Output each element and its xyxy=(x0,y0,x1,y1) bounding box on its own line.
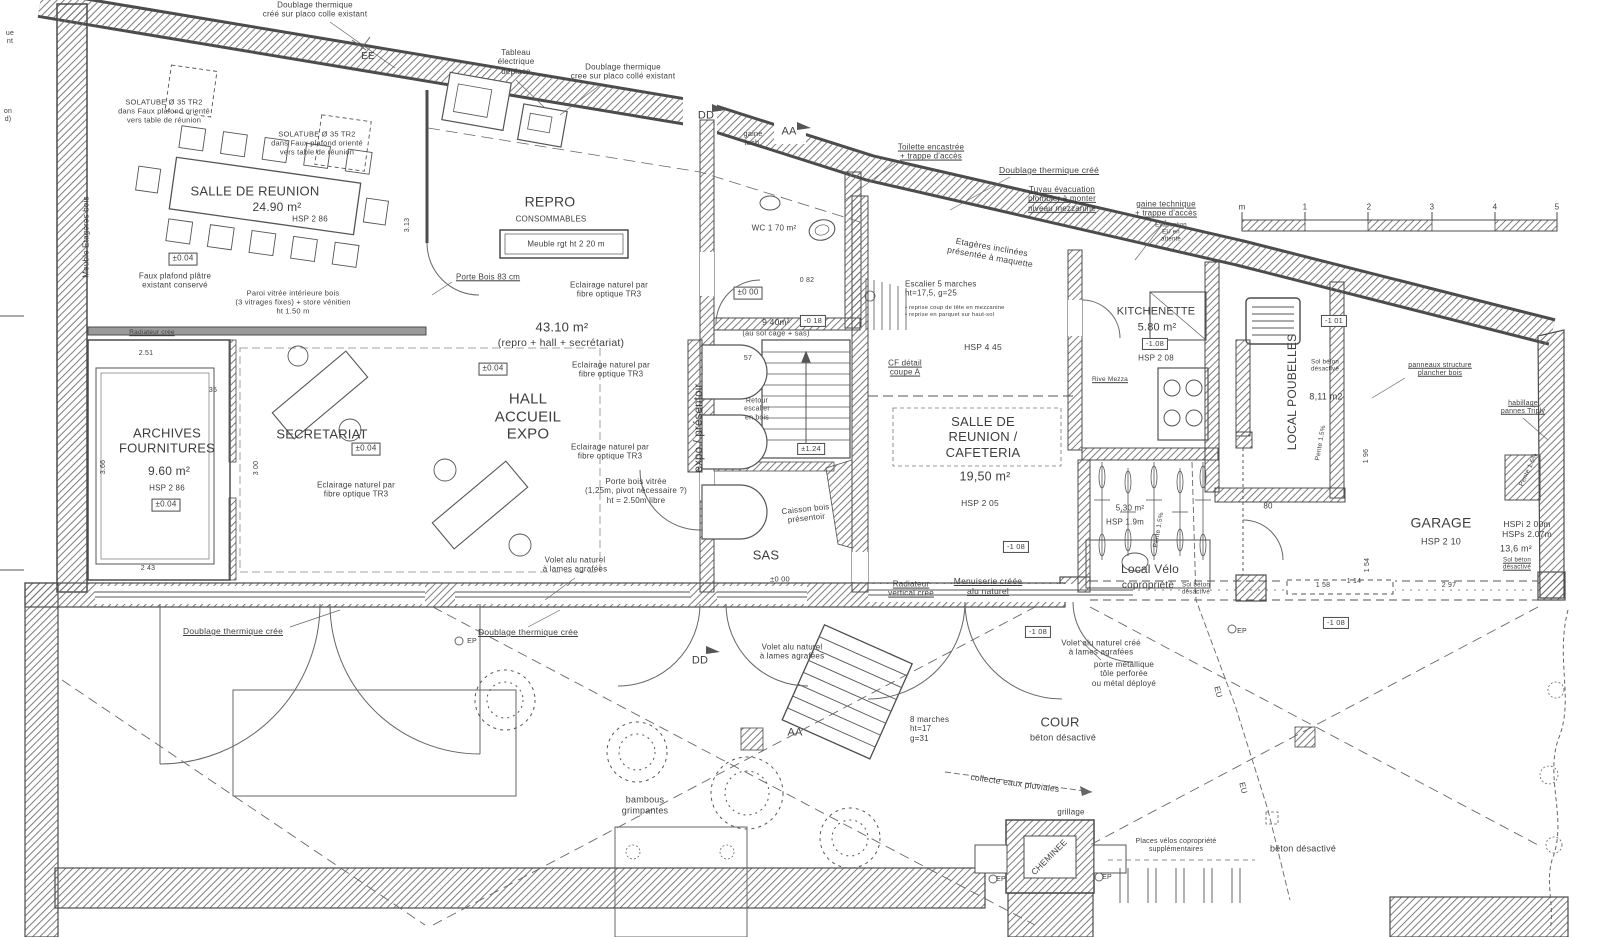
floorplan-page: Doublage thermique créé sur placo colle … xyxy=(0,0,1600,937)
scale-bar xyxy=(1242,212,1557,231)
glazed-partition xyxy=(88,327,426,335)
door-arcs xyxy=(160,280,1133,764)
floorplan-drawing xyxy=(0,0,1600,937)
